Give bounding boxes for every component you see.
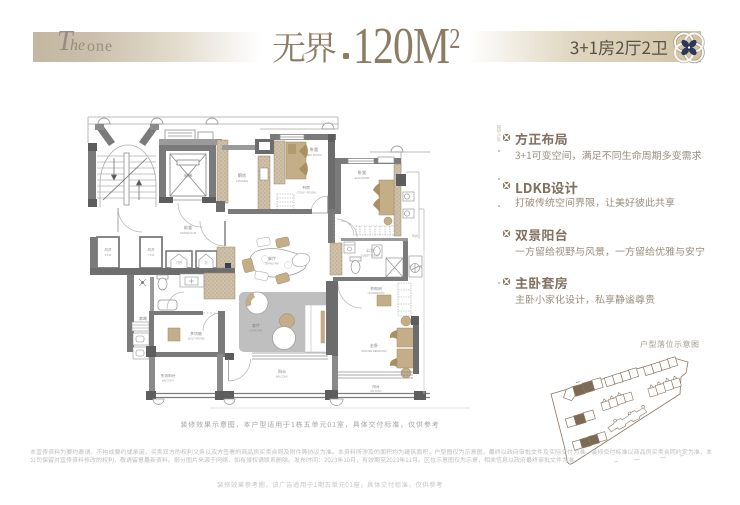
svg-text:BALCONY: BALCONY [370, 389, 382, 393]
svg-text:BED ROOM: BED ROOM [306, 153, 322, 157]
svg-text:GUEST TOILET: GUEST TOILET [361, 254, 380, 258]
svg-text:Y.S.W: Y.S.W [148, 253, 155, 257]
svg-text:BALCONY: BALCONY [276, 375, 289, 379]
svg-text:门厅: 门厅 [176, 260, 183, 265]
svg-text:P.S.W: P.S.W [105, 253, 112, 257]
svg-text:CLOAKROOM: CLOAKROOM [368, 291, 385, 295]
svg-text:风井: 风井 [412, 234, 418, 238]
svg-text:LIVING RM.: LIVING RM. [249, 329, 263, 333]
svg-text:STUDY ROOM: STUDY ROOM [297, 191, 316, 195]
svg-text:ELD.ROOM: ELD.ROOM [355, 176, 370, 180]
svg-text:MASTER BEDROOM: MASTER BEDROOM [362, 349, 387, 353]
svg-text:电梯: 电梯 [184, 173, 192, 179]
svg-text:DINING RM.: DINING RM. [265, 262, 280, 266]
svg-text:KITCHEN: KITCHEN [236, 179, 248, 183]
svg-text:ANTEROOM: ANTEROOM [180, 231, 197, 235]
svg-text:MULTI ROOM: MULTI ROOM [188, 337, 205, 341]
svg-text:BALCONY: BALCONY [162, 379, 175, 383]
